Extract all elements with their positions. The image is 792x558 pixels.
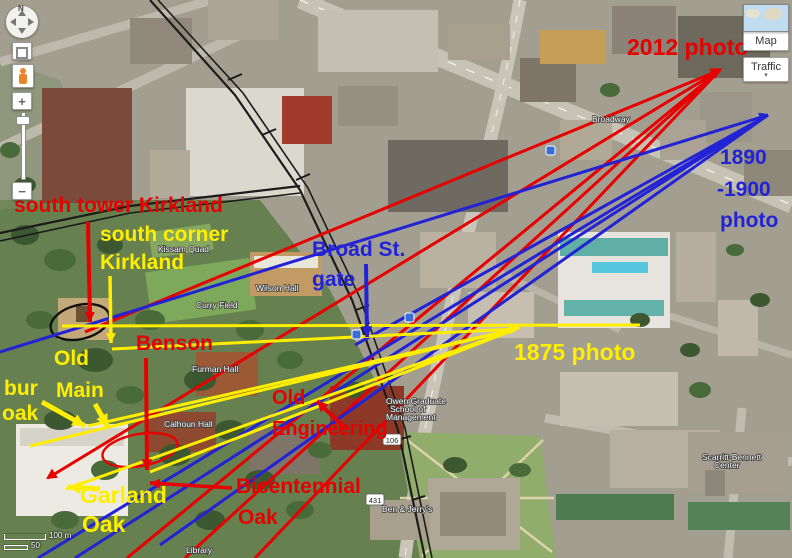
transit-icon[interactable] [546, 146, 555, 155]
scale-bottom-label: 50 [31, 541, 40, 550]
imagery-label: Curry Field [196, 300, 238, 310]
sightline-yellow [66, 329, 516, 489]
label-bicentennial-oak: Bicentennial [236, 475, 361, 498]
overview-map-thumbnail[interactable] [743, 4, 789, 32]
imagery-label: Management [386, 412, 436, 422]
scale-top-label: 100 m [49, 531, 71, 540]
arrowhead [68, 481, 81, 494]
benson-arrow [146, 358, 147, 470]
label-broad-st-gate: gate [312, 268, 355, 291]
label-bur-oak: oak [2, 402, 39, 425]
label-old-engineering: Old [272, 387, 305, 409]
map-type-control: Map Traffic ▾ [743, 4, 789, 82]
south-corner-kirkland-arrow [110, 276, 111, 343]
reset-view-button[interactable] [12, 42, 32, 60]
label-1890-1900-photo: -1900 [717, 178, 771, 201]
label-south-tower-kirkland: south tower Kirkland [14, 194, 223, 217]
broad-st-gate-arrow [366, 264, 367, 337]
label-1890-1900-photo: 1890 [720, 146, 767, 169]
transit-icon[interactable] [352, 330, 361, 339]
annotation-overlay: Curry FieldWilson HallKissam QuadFurman … [0, 0, 792, 558]
route-shields: 106431 [366, 434, 401, 505]
label-1875-photo: 1875 photo [514, 339, 635, 365]
label-1890-1900-photo: photo [720, 209, 778, 232]
zoom-out-button[interactable]: − [12, 182, 32, 200]
imagery-label: Wilson Hall [256, 283, 299, 293]
caret-down-icon: ▾ [744, 73, 788, 78]
label-benson: Benson [136, 332, 213, 355]
route-shield-number: 431 [369, 496, 382, 505]
label-2012-photo: 2012 photo [627, 34, 748, 60]
route-shield-number: 106 [386, 436, 399, 445]
sightline-yellow [62, 325, 640, 326]
imagery-label: Broadway [592, 114, 631, 124]
imagery-label: Center [714, 460, 740, 470]
transit-icon[interactable] [405, 313, 414, 322]
map-canvas[interactable]: Curry FieldWilson HallKissam QuadFurman … [0, 0, 792, 558]
arrowhead [106, 333, 116, 343]
street-view-pegman[interactable] [12, 64, 34, 88]
sightline-blue [355, 115, 768, 345]
arrowhead [85, 312, 95, 322]
label-bur-oak: bur [4, 377, 38, 400]
zoom-slider-handle[interactable] [16, 116, 30, 125]
label-bicentennial-oak: Oak [238, 506, 278, 529]
map-type-button[interactable]: Map [743, 32, 789, 51]
south-tower-kirkland-arrow [88, 222, 90, 322]
pan-right-button[interactable] [28, 18, 34, 26]
traffic-button[interactable]: Traffic ▾ [743, 57, 789, 82]
scale-bar: 100 m 50 [4, 530, 71, 550]
imagery-label: Library [186, 545, 213, 555]
label-south-corner-kirkland: Kirkland [100, 251, 184, 274]
zoom-slider[interactable] [19, 112, 25, 178]
label-garland-oak: Garland [80, 482, 167, 508]
label-old-main: Old [54, 347, 89, 370]
pan-control[interactable]: N [6, 6, 38, 38]
arrowhead [142, 459, 153, 470]
pan-up-button[interactable] [18, 10, 26, 16]
zoom-in-button[interactable]: + [12, 92, 32, 110]
annotation-labels: south tower Kirklandsouth cornerKirkland… [2, 34, 778, 537]
sightline-red [127, 70, 720, 558]
label-old-main: Main [56, 379, 104, 402]
label-broad-st-gate: Broad St. [312, 238, 405, 261]
label-south-corner-kirkland: south corner [100, 223, 228, 246]
imagery-label: Ben & Jerry's [382, 504, 432, 514]
imagery-label: Calhoun Hall [164, 419, 213, 429]
imagery-label: Furman Hall [192, 364, 238, 374]
label-garland-oak: Oak [82, 511, 126, 537]
map-navigation-control: N + − [6, 6, 40, 200]
pan-down-button[interactable] [18, 28, 26, 34]
label-old-engineering: Engineering [272, 418, 388, 440]
pan-left-button[interactable] [10, 18, 16, 26]
